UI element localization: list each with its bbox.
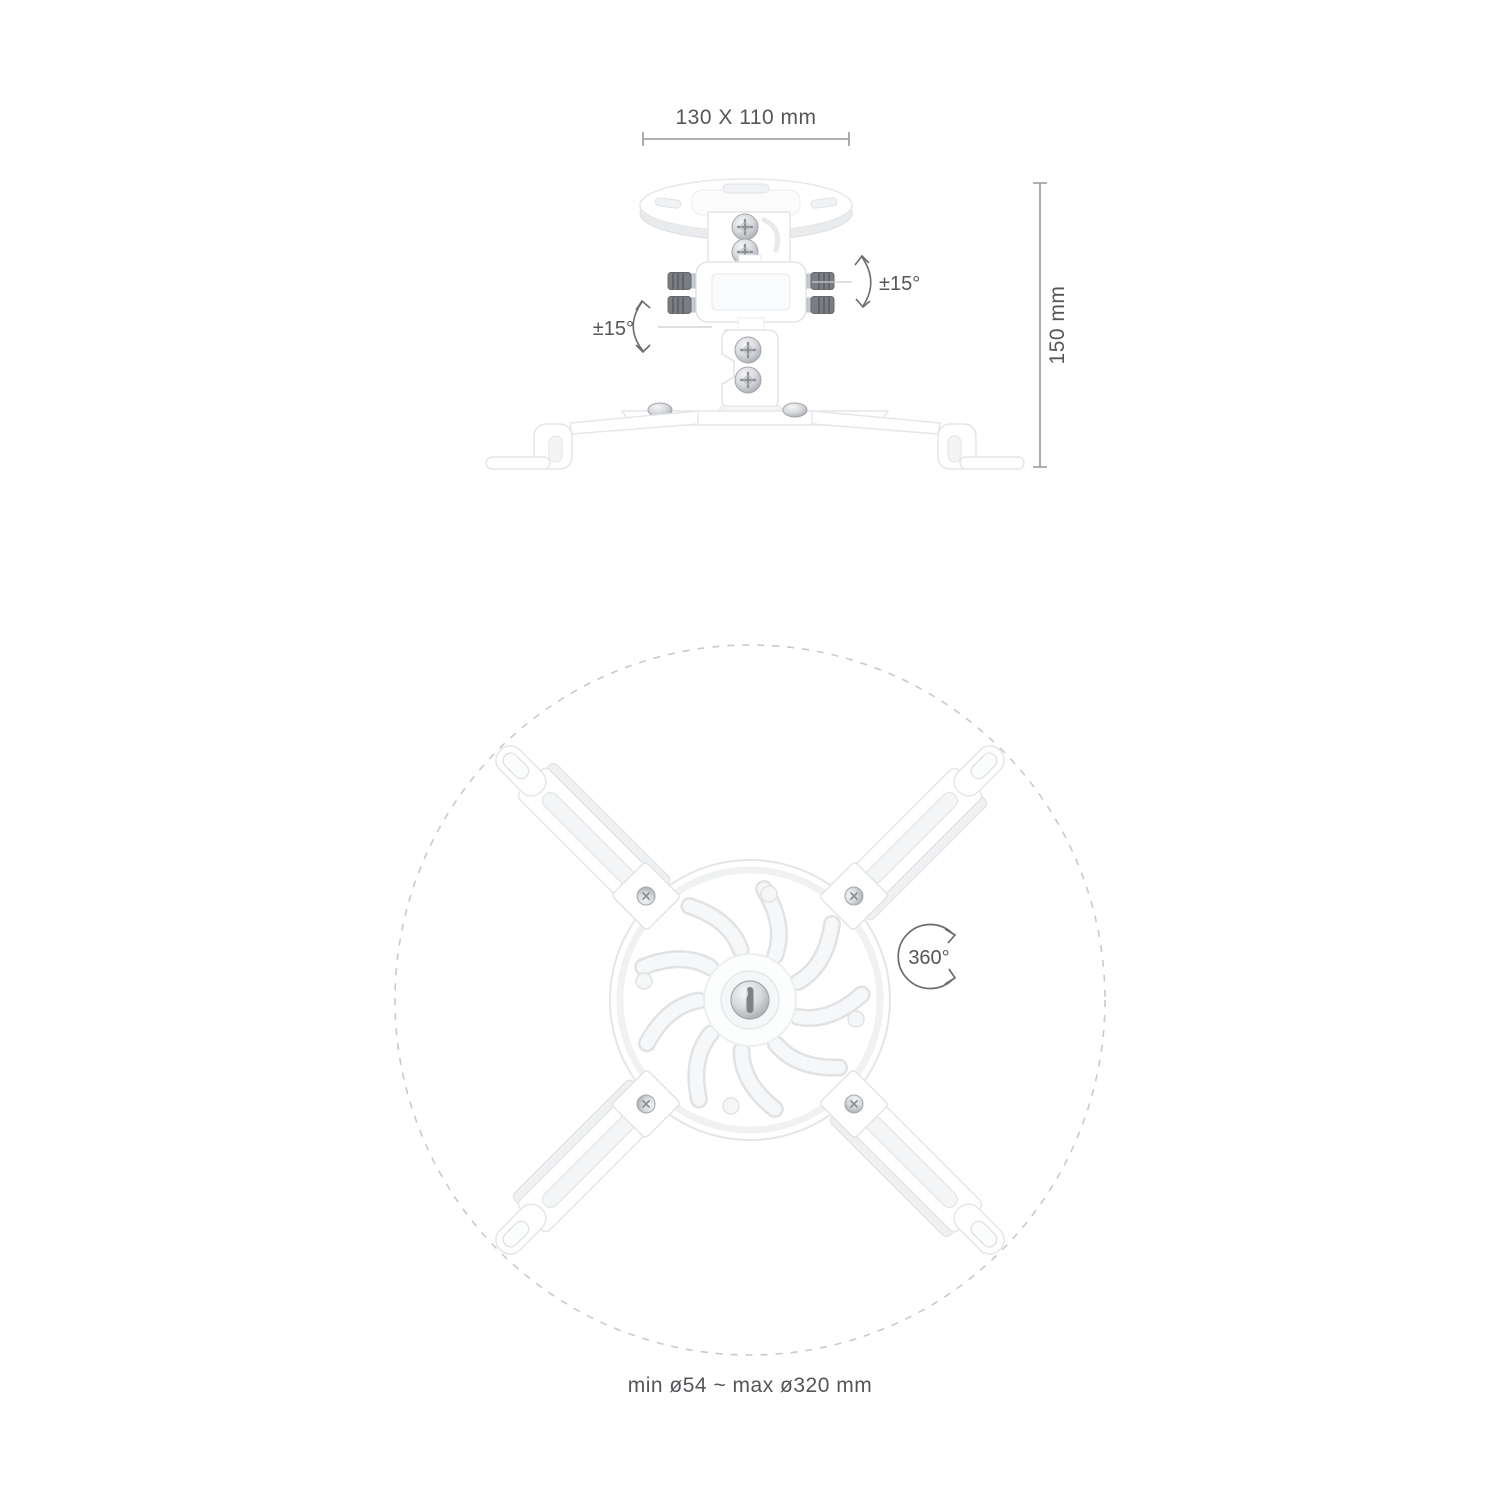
- plate-hole: [848, 1011, 864, 1027]
- side-view-figure: 130 X 110 mm 150 mm ±15° ±15°: [486, 106, 1069, 469]
- arrowhead-icon: [945, 929, 955, 943]
- bracket-screw: [735, 337, 761, 363]
- arrowhead-down-icon: [856, 299, 870, 307]
- top-down-view-figure: 360° min ø54 ~ max ø320 mm: [395, 645, 1105, 1397]
- extendable-arm-top-right: [819, 733, 1021, 935]
- plate-hole: [636, 973, 652, 989]
- tilt-right-label: ±15°: [879, 273, 920, 295]
- plate-hole: [723, 1098, 739, 1114]
- width-dimension: 130 X 110 mm: [643, 106, 849, 146]
- center-ball-screw: [731, 981, 769, 1019]
- tilt-knob: [807, 297, 834, 314]
- extendable-arm-bottom-right: [815, 1069, 1017, 1271]
- tilt-knob: [807, 273, 834, 290]
- height-dimension: 150 mm: [1033, 183, 1069, 467]
- arrowhead-down-icon: [636, 345, 650, 352]
- tilt-arc-icon: [862, 257, 871, 306]
- rotation-label: 360°: [908, 947, 949, 969]
- tilt-joint: [668, 255, 834, 322]
- width-dimension-label: 130 X 110 mm: [675, 106, 816, 129]
- projector-arms-side: [486, 403, 1024, 469]
- diagram-svg: 130 X 110 mm 150 mm ±15° ±15°: [0, 0, 1500, 1500]
- arrowhead-icon: [945, 969, 955, 984]
- plate-top-slot: [723, 184, 769, 193]
- product-dimension-diagram: 130 X 110 mm 150 mm ±15° ±15°: [0, 0, 1500, 1500]
- tilt-left-label: ±15°: [593, 318, 634, 340]
- bracket-screw: [732, 214, 758, 240]
- tilt-knob: [668, 273, 695, 290]
- diameter-range-label: min ø54 ~ max ø320 mm: [628, 1374, 872, 1397]
- tilt-arc-icon: [633, 302, 643, 351]
- rotation-annotation: 360°: [898, 925, 955, 989]
- lower-bracket: [722, 318, 778, 410]
- plate-hole: [761, 886, 777, 902]
- height-dimension-label: 150 mm: [1046, 286, 1069, 365]
- dome-screw: [783, 403, 807, 417]
- extendable-arm-top-left: [483, 729, 685, 931]
- bracket-screw: [735, 367, 761, 393]
- tilt-knob: [668, 297, 695, 314]
- extendable-arm-bottom-left: [479, 1065, 681, 1267]
